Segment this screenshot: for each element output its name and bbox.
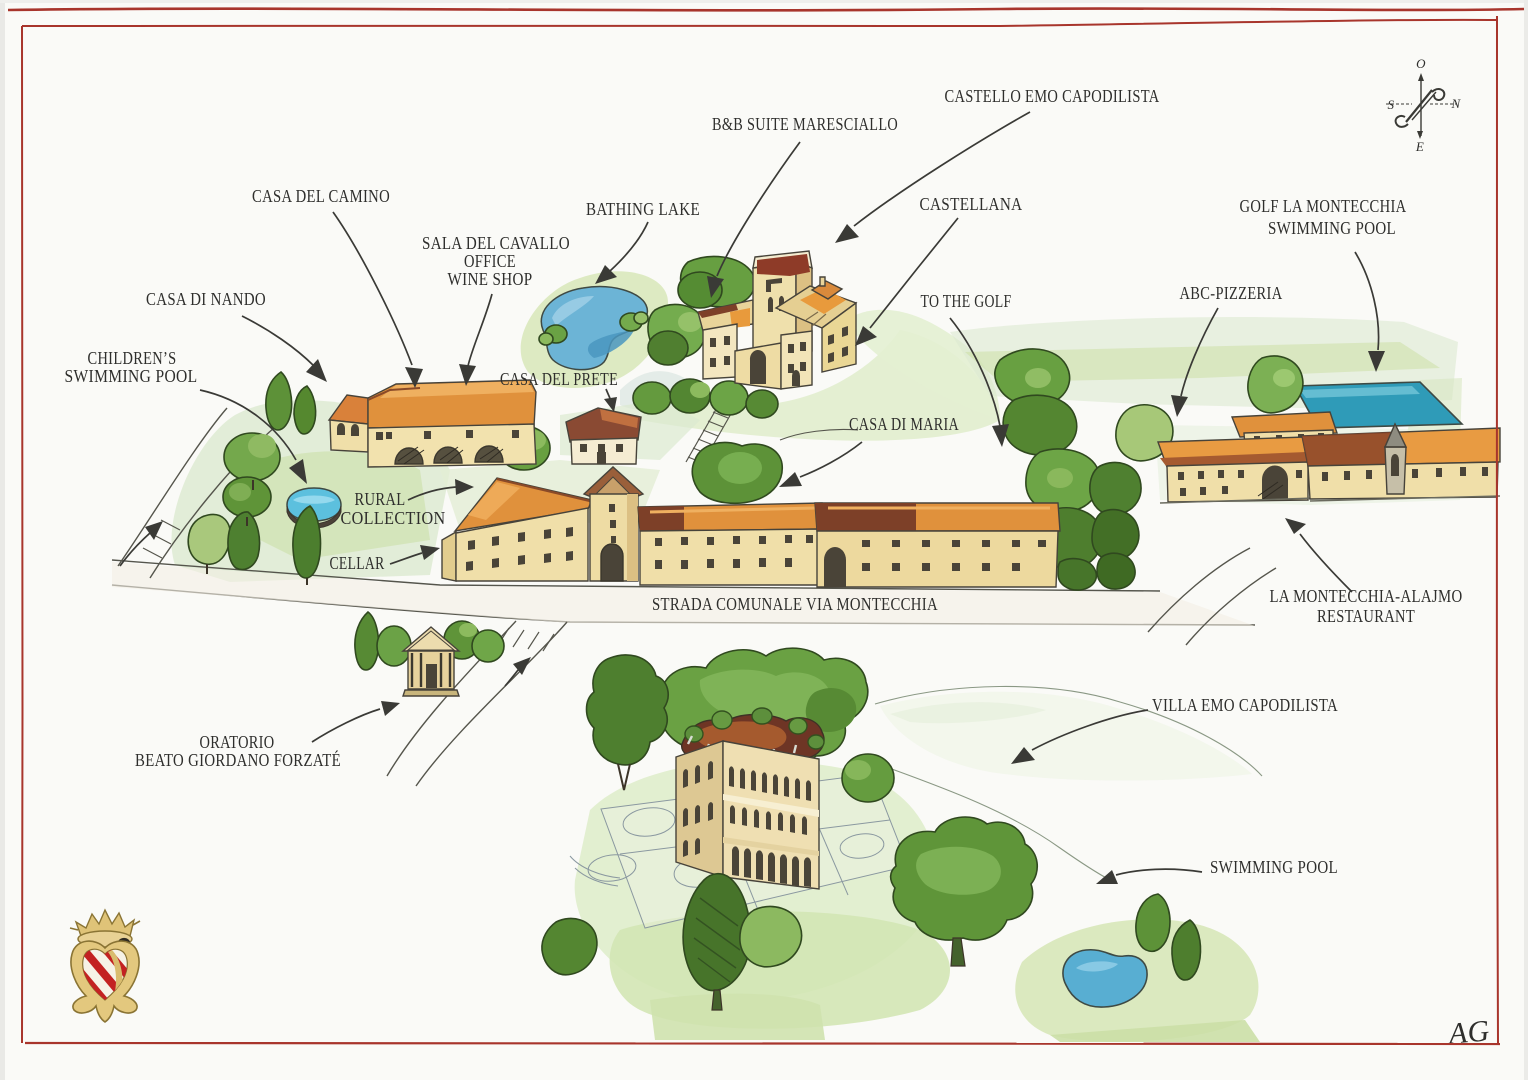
svg-text:CASA DEL PRETE: CASA DEL PRETE [500, 369, 618, 389]
svg-text:SWIMMING POOL: SWIMMING POOL [65, 366, 198, 386]
svg-text:AG: AG [1445, 1014, 1491, 1051]
svg-text:BATHING LAKE: BATHING LAKE [586, 199, 700, 219]
svg-text:ORATORIO: ORATORIO [200, 732, 275, 752]
svg-text:WINE SHOP: WINE SHOP [448, 269, 533, 289]
svg-text:RURAL: RURAL [355, 489, 406, 509]
svg-text:CASTELLANA: CASTELLANA [920, 194, 1023, 214]
svg-text:CASA DEL CAMINO: CASA DEL CAMINO [252, 186, 390, 206]
svg-text:STRADA COMUNALE VIA MONTECCHIA: STRADA COMUNALE VIA MONTECCHIA [652, 594, 938, 614]
svg-text:CHILDREN’S: CHILDREN’S [88, 348, 177, 368]
svg-text:OFFICE: OFFICE [464, 251, 516, 271]
svg-text:N: N [1450, 96, 1461, 111]
svg-text:SWIMMING POOL: SWIMMING POOL [1210, 857, 1338, 877]
svg-text:CASTELLO EMO CAPODILISTA: CASTELLO EMO CAPODILISTA [945, 86, 1160, 106]
svg-text:GOLF LA MONTECCHIA: GOLF LA MONTECCHIA [1240, 196, 1407, 216]
svg-text:S: S [1388, 97, 1395, 112]
svg-text:E: E [1415, 139, 1424, 154]
svg-text:SALA DEL CAVALLO: SALA DEL CAVALLO [422, 233, 570, 253]
svg-text:ABC-PIZZERIA: ABC-PIZZERIA [1180, 283, 1283, 303]
svg-text:VILLA EMO CAPODILISTA: VILLA EMO CAPODILISTA [1152, 695, 1338, 715]
svg-text:BEATO GIORDANO FORZATÉ: BEATO GIORDANO FORZATÉ [135, 750, 341, 770]
svg-text:RESTAURANT: RESTAURANT [1317, 606, 1415, 626]
svg-text:SWIMMING POOL: SWIMMING POOL [1268, 218, 1396, 238]
svg-text:COLLECTION: COLLECTION [341, 508, 446, 528]
svg-text:CELLAR: CELLAR [330, 553, 385, 573]
svg-text:O: O [1416, 56, 1426, 71]
svg-text:TO THE GOLF: TO THE GOLF [921, 291, 1012, 311]
svg-text:B&B SUITE MARESCIALLO: B&B SUITE MARESCIALLO [712, 114, 898, 134]
svg-text:CASA DI MARIA: CASA DI MARIA [849, 414, 959, 434]
svg-text:CASA DI NANDO: CASA DI NANDO [146, 289, 266, 309]
svg-text:LA MONTECCHIA-ALAJMO: LA MONTECCHIA-ALAJMO [1270, 586, 1463, 606]
